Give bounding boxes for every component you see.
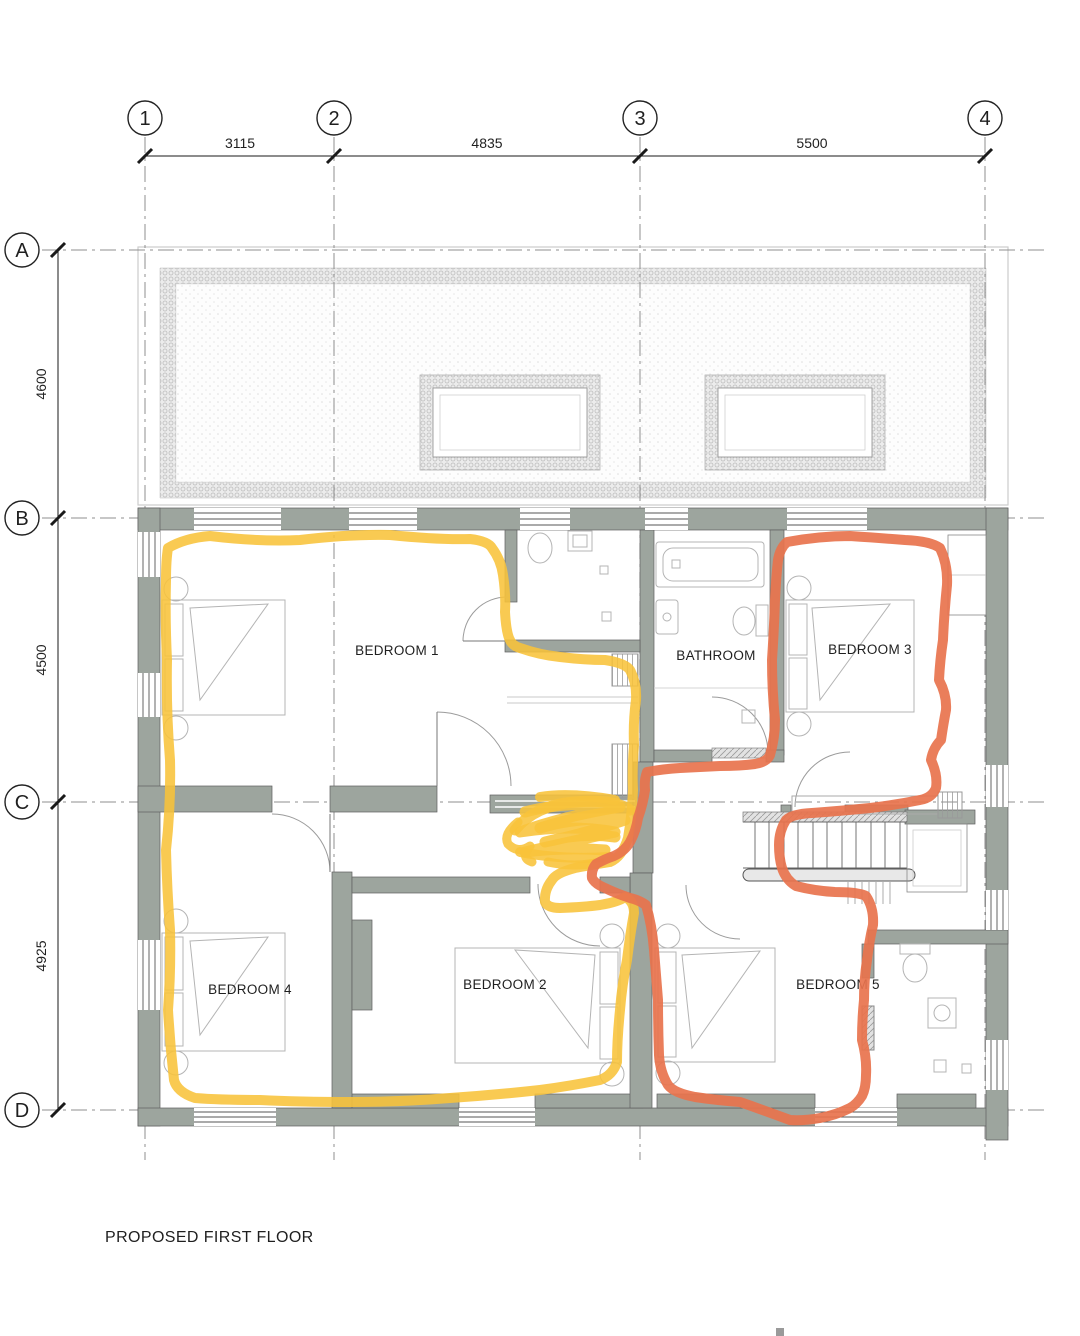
ensuite1-fixtures: [528, 531, 611, 621]
grid-bubble-1: 1: [139, 108, 150, 130]
room-label-bathroom: BATHROOM: [676, 648, 755, 663]
dim-4835: 4835: [471, 135, 502, 151]
dim-3115: 3115: [225, 135, 255, 151]
wall-ensuite5: [868, 930, 1008, 944]
dim-4925: 4925: [33, 940, 49, 971]
stair-handrail: [743, 869, 915, 881]
door-bedroom3: [795, 752, 850, 807]
bed-bedroom1: [162, 577, 285, 740]
room-label-bedroom-1: BEDROOM 1: [355, 643, 439, 658]
grid-bubble-B: B: [15, 508, 28, 530]
skylight: [705, 375, 885, 470]
grid-bubble-D: D: [15, 1100, 29, 1122]
bathtub: [656, 542, 764, 587]
room-label-bedroom-2: BEDROOM 2: [463, 977, 547, 992]
room-label-bedroom-3: BEDROOM 3: [828, 642, 912, 657]
grid-bubble-2: 2: [328, 108, 339, 130]
grid-bubble-A: A: [15, 240, 29, 262]
dim-4600: 4600: [33, 368, 49, 399]
ensuite5-fixtures: [862, 944, 971, 1073]
door-bedroom4: [272, 814, 330, 872]
stair-landing: [907, 824, 967, 892]
dim-4500: 4500: [33, 644, 49, 675]
roof-deck: [138, 247, 1008, 505]
toilet: [733, 605, 768, 636]
grid-bubble-3: 3: [634, 108, 645, 130]
floor-plan-page: 3115 4835 5500 4600 4500 4925 1 2 3 4 A …: [0, 0, 1080, 1336]
yellow-annotation: [166, 535, 636, 1102]
wall-bed4-bed2-divider: [332, 872, 352, 1108]
wall-west: [138, 508, 160, 1126]
bathroom-sink: [656, 600, 678, 634]
room-label-bedroom-4: BEDROOM 4: [208, 982, 292, 997]
door-bedroom5: [686, 885, 740, 939]
radiator: [938, 792, 962, 818]
drawing-title: PROPOSED FIRST FLOOR: [105, 1229, 314, 1246]
floor-plan-svg: 3115 4835 5500 4600 4500 4925 1 2 3 4 A …: [0, 0, 1080, 1336]
grid-bubble-4: 4: [979, 108, 990, 130]
wall-bathroom-west: [640, 530, 654, 762]
page-edge-artifact: [776, 1328, 784, 1336]
door-bedroom1: [437, 712, 511, 786]
dim-5500: 5500: [796, 135, 827, 151]
bathroom-shelf: [742, 710, 755, 723]
grid-bubble-C: C: [15, 792, 29, 814]
skylight: [420, 375, 600, 470]
door-bathroom: [712, 697, 768, 753]
bed-bedroom2: [455, 924, 624, 1086]
bed-bedroom5: [655, 924, 775, 1085]
